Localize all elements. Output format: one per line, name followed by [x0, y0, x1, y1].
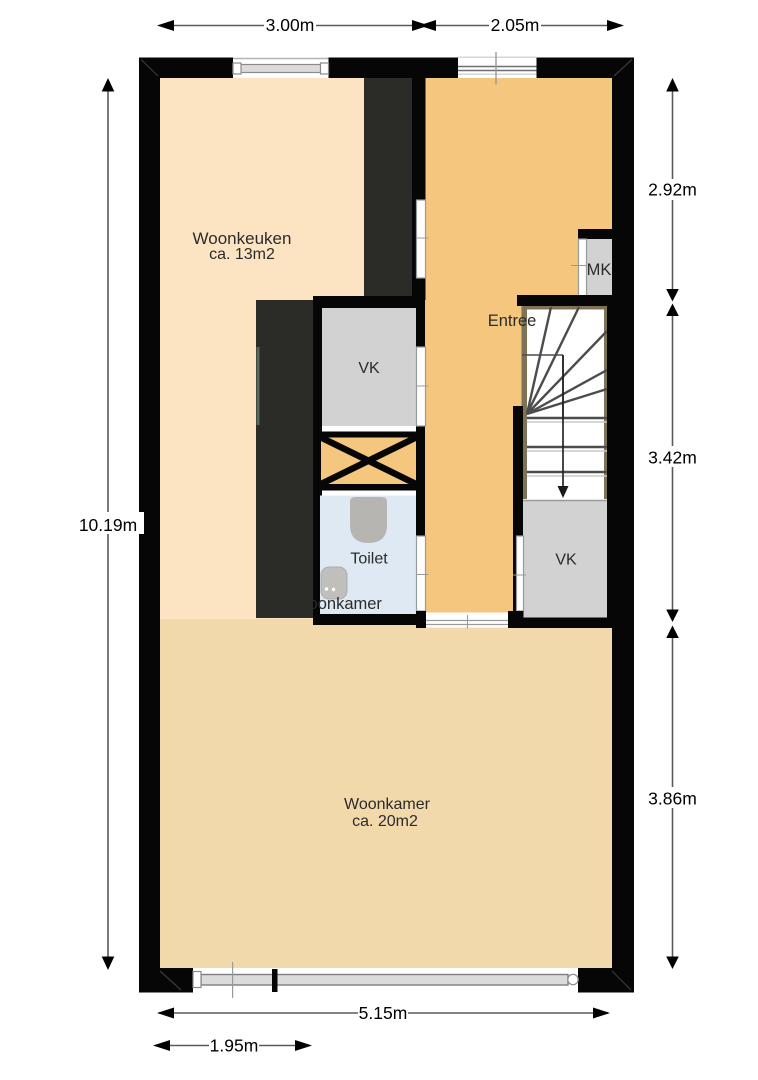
svg-text:5.15m: 5.15m [359, 1003, 408, 1023]
svg-text:10.19m: 10.19m [79, 515, 137, 535]
svg-text:ca. 13m2: ca. 13m2 [209, 246, 275, 263]
svg-text:3.00m: 3.00m [266, 15, 315, 35]
svg-text:ca. 20m2: ca. 20m2 [352, 813, 418, 830]
svg-text:Woonkamer: Woonkamer [344, 796, 431, 813]
svg-text:Toilet: Toilet [350, 551, 388, 568]
svg-text:3.42m: 3.42m [648, 448, 697, 468]
svg-text:2.05m: 2.05m [491, 15, 540, 35]
svg-text:VK: VK [555, 552, 577, 569]
svg-text:2.92m: 2.92m [648, 180, 697, 200]
svg-text:VK: VK [358, 360, 380, 377]
svg-text:Entree: Entree [488, 312, 537, 330]
svg-text:Woonkamer: Woonkamer [293, 595, 382, 613]
svg-text:1.95m: 1.95m [210, 1036, 259, 1056]
svg-text:MK: MK [587, 261, 612, 279]
svg-text:3.86m: 3.86m [648, 789, 697, 809]
